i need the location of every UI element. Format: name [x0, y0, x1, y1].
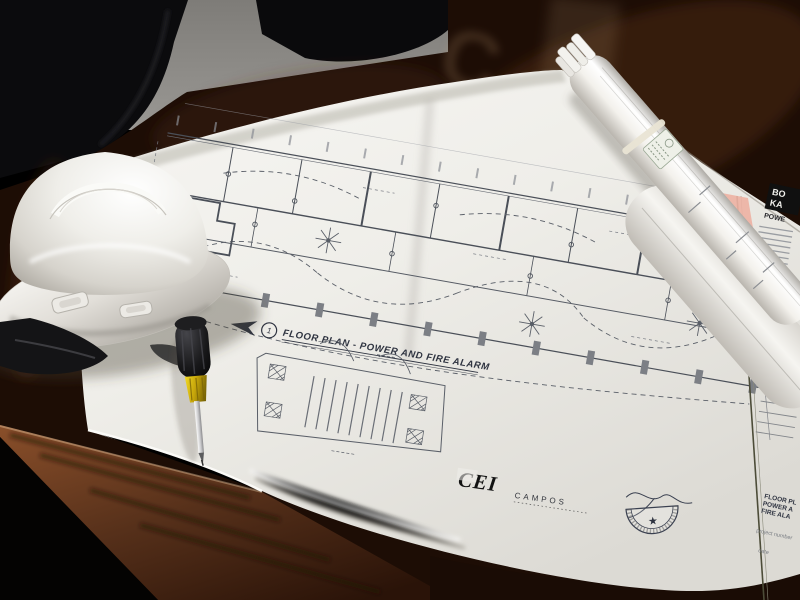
photo-construction-plans: C [0, 0, 800, 600]
seal-star-icon: ★ [648, 515, 659, 528]
scene-canvas: C [0, 0, 800, 600]
